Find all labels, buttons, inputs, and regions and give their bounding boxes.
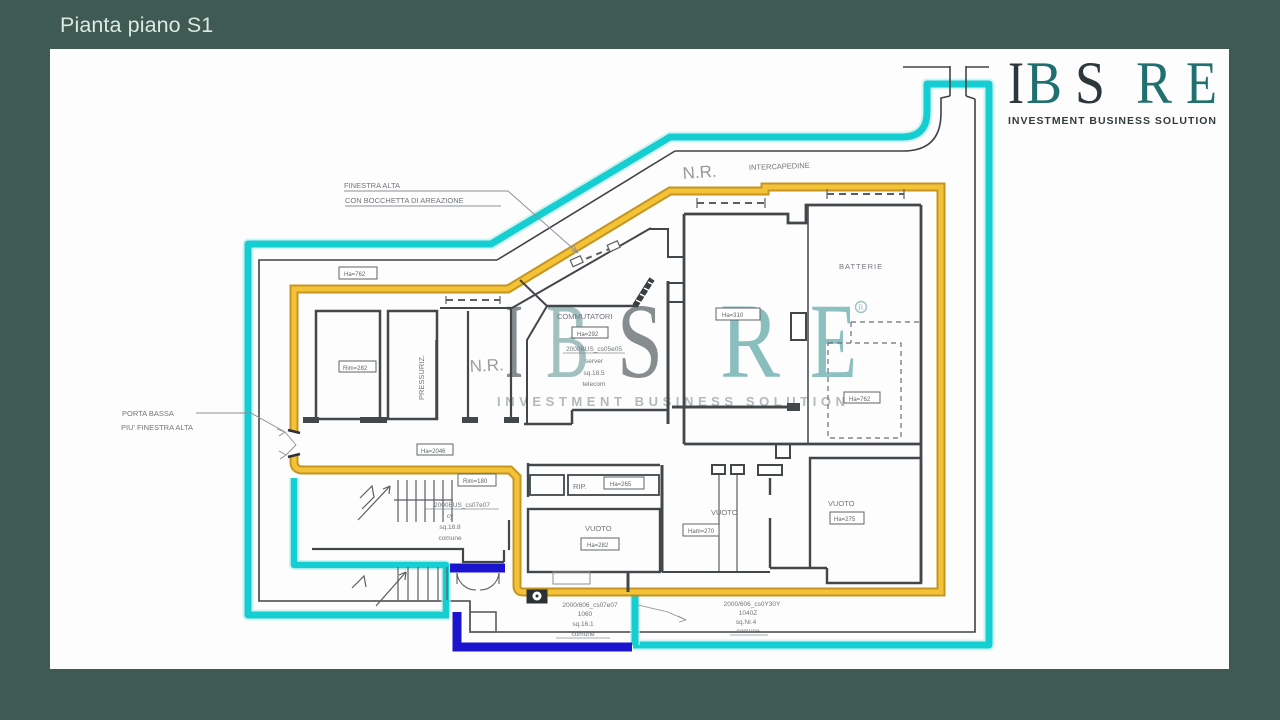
svg-text:PRESSURIZ.: PRESSURIZ.: [417, 355, 426, 400]
svg-text:Ha=762: Ha=762: [849, 397, 871, 403]
svg-text:B: B: [1026, 50, 1062, 116]
svg-text:Rim=282: Rim=282: [343, 366, 368, 372]
svg-text:Ha=292: Ha=292: [577, 332, 599, 338]
svg-text:PIU' FINESTRA ALTA: PIU' FINESTRA ALTA: [121, 423, 193, 432]
svg-text:sq.16.1: sq.16.1: [572, 621, 594, 628]
svg-text:E: E: [810, 283, 857, 401]
svg-text:comune: comune: [438, 535, 462, 542]
svg-text:2000/606_cs07e07: 2000/606_cs07e07: [562, 602, 618, 609]
svg-text:Rim=180: Rim=180: [463, 479, 488, 485]
svg-text:1040Z: 1040Z: [739, 610, 757, 617]
svg-text:N.R.: N.R.: [469, 355, 504, 376]
svg-text:server: server: [585, 358, 604, 365]
svg-text:Ha=310: Ha=310: [722, 313, 744, 319]
svg-text:I: I: [505, 283, 523, 401]
svg-text:COMMUTATORI: COMMUTATORI: [557, 312, 612, 321]
svg-text:1060: 1060: [578, 611, 593, 618]
svg-text:CON BOCCHETTA DI AREAZIONE: CON BOCCHETTA DI AREAZIONE: [345, 196, 464, 205]
svg-text:VUOTO: VUOTO: [711, 508, 738, 517]
svg-text:RIP.: RIP.: [573, 482, 587, 491]
svg-text:Ham=270: Ham=270: [688, 529, 715, 535]
svg-text:2000BUS_cs07e07: 2000BUS_cs07e07: [434, 502, 490, 509]
svg-text:comune: comune: [736, 628, 760, 635]
svg-text:Ha=275: Ha=275: [834, 517, 856, 523]
svg-text:I: I: [1008, 50, 1024, 116]
svg-text:sq.18.8: sq.18.8: [439, 524, 461, 531]
svg-text:BATTERIE: BATTERIE: [839, 262, 883, 271]
svg-text:S: S: [1075, 50, 1105, 116]
svg-text:Ha=762: Ha=762: [344, 272, 366, 278]
svg-text:Ha=2046: Ha=2046: [421, 449, 446, 455]
svg-text:2000BUS_cs05e05: 2000BUS_cs05e05: [566, 346, 622, 353]
svg-text:R: R: [1136, 50, 1172, 116]
svg-text:FINESTRA ALTA: FINESTRA ALTA: [344, 181, 400, 190]
svg-text:sq.Nr.4: sq.Nr.4: [736, 619, 757, 626]
svg-text:R: R: [858, 303, 864, 312]
svg-text:telecom: telecom: [583, 381, 606, 388]
svg-text:cy: cy: [447, 513, 454, 520]
svg-text:VUOTO: VUOTO: [828, 499, 855, 508]
svg-text:INTERCAPEDINE: INTERCAPEDINE: [749, 161, 810, 172]
svg-text:2000/606_cs0Y30Y: 2000/606_cs0Y30Y: [724, 601, 781, 608]
svg-text:comune: comune: [571, 631, 595, 638]
svg-text:Ha=265: Ha=265: [610, 482, 632, 488]
svg-text:sq.18.5: sq.18.5: [583, 370, 605, 377]
svg-text:N.R.: N.R.: [682, 162, 717, 183]
svg-text:INVESTMENT BUSINESS SOLUTION: INVESTMENT BUSINESS SOLUTION: [1008, 115, 1216, 127]
svg-text:E: E: [1186, 50, 1217, 116]
svg-text:R: R: [720, 283, 781, 401]
svg-text:PORTA BASSA: PORTA BASSA: [122, 409, 174, 418]
svg-text:Ha=282: Ha=282: [587, 543, 609, 549]
svg-text:VUOTO: VUOTO: [585, 524, 612, 533]
